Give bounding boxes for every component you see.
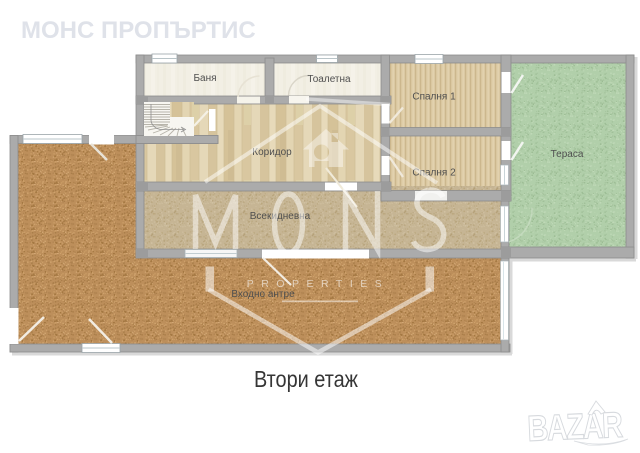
svg-text:Спалня 1: Спалня 1 <box>412 92 456 103</box>
svg-text:Входно антре: Входно антре <box>231 289 295 300</box>
svg-text:BAZAR: BAZAR <box>527 404 624 449</box>
svg-text:PROPERTIES: PROPERTIES <box>247 278 390 290</box>
svg-text:Тераса: Тераса <box>551 149 584 160</box>
svg-text:Втори етаж: Втори етаж <box>254 366 359 392</box>
svg-text:Баня: Баня <box>193 73 216 84</box>
svg-text:Тоалетна: Тоалетна <box>307 74 351 85</box>
svg-text:МОНС ПРОПЪРТИС: МОНС ПРОПЪРТИС <box>21 17 256 44</box>
